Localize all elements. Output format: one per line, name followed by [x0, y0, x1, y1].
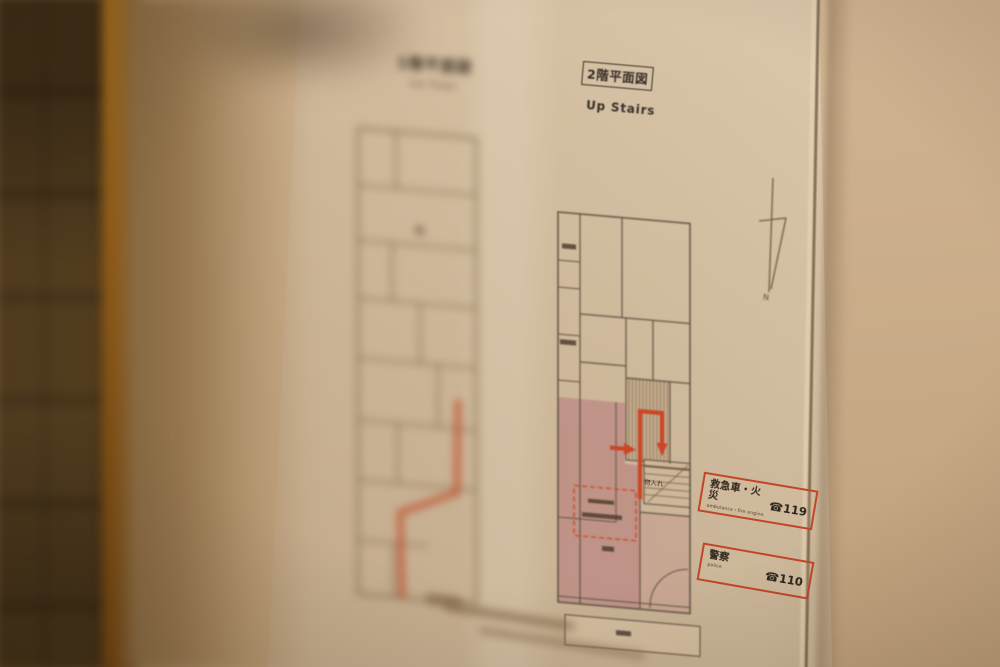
blurred-door-frame: [124, 0, 319, 667]
emergency-police-sublabel: police: [707, 563, 728, 572]
first-floor-plan-blurred: [358, 128, 476, 604]
emergency-police-text: 警察 police: [707, 550, 730, 571]
north-label: N: [763, 293, 770, 302]
emergency-fire-text: 救急車・火災 ambulance・fire engine: [706, 479, 772, 519]
shoji-lattice-foreground: [0, 0, 118, 667]
photo-of-evacuation-plan: 1階平面図 1st Floor 2階平面図 Up Stairs 物入れ N 救急…: [0, 0, 1000, 667]
north-arrow-icon: [759, 178, 786, 292]
closet-label: 物入れ: [644, 476, 664, 488]
fire-number: 119: [782, 501, 808, 519]
emergency-police-number: ☎110: [764, 568, 804, 588]
emergency-police-label: 警察: [708, 550, 730, 564]
police-number: 110: [778, 571, 804, 589]
pink-room-area-2: [640, 512, 690, 613]
emergency-fire-number: ☎119: [768, 498, 808, 518]
upstairs-plan: [558, 212, 700, 656]
